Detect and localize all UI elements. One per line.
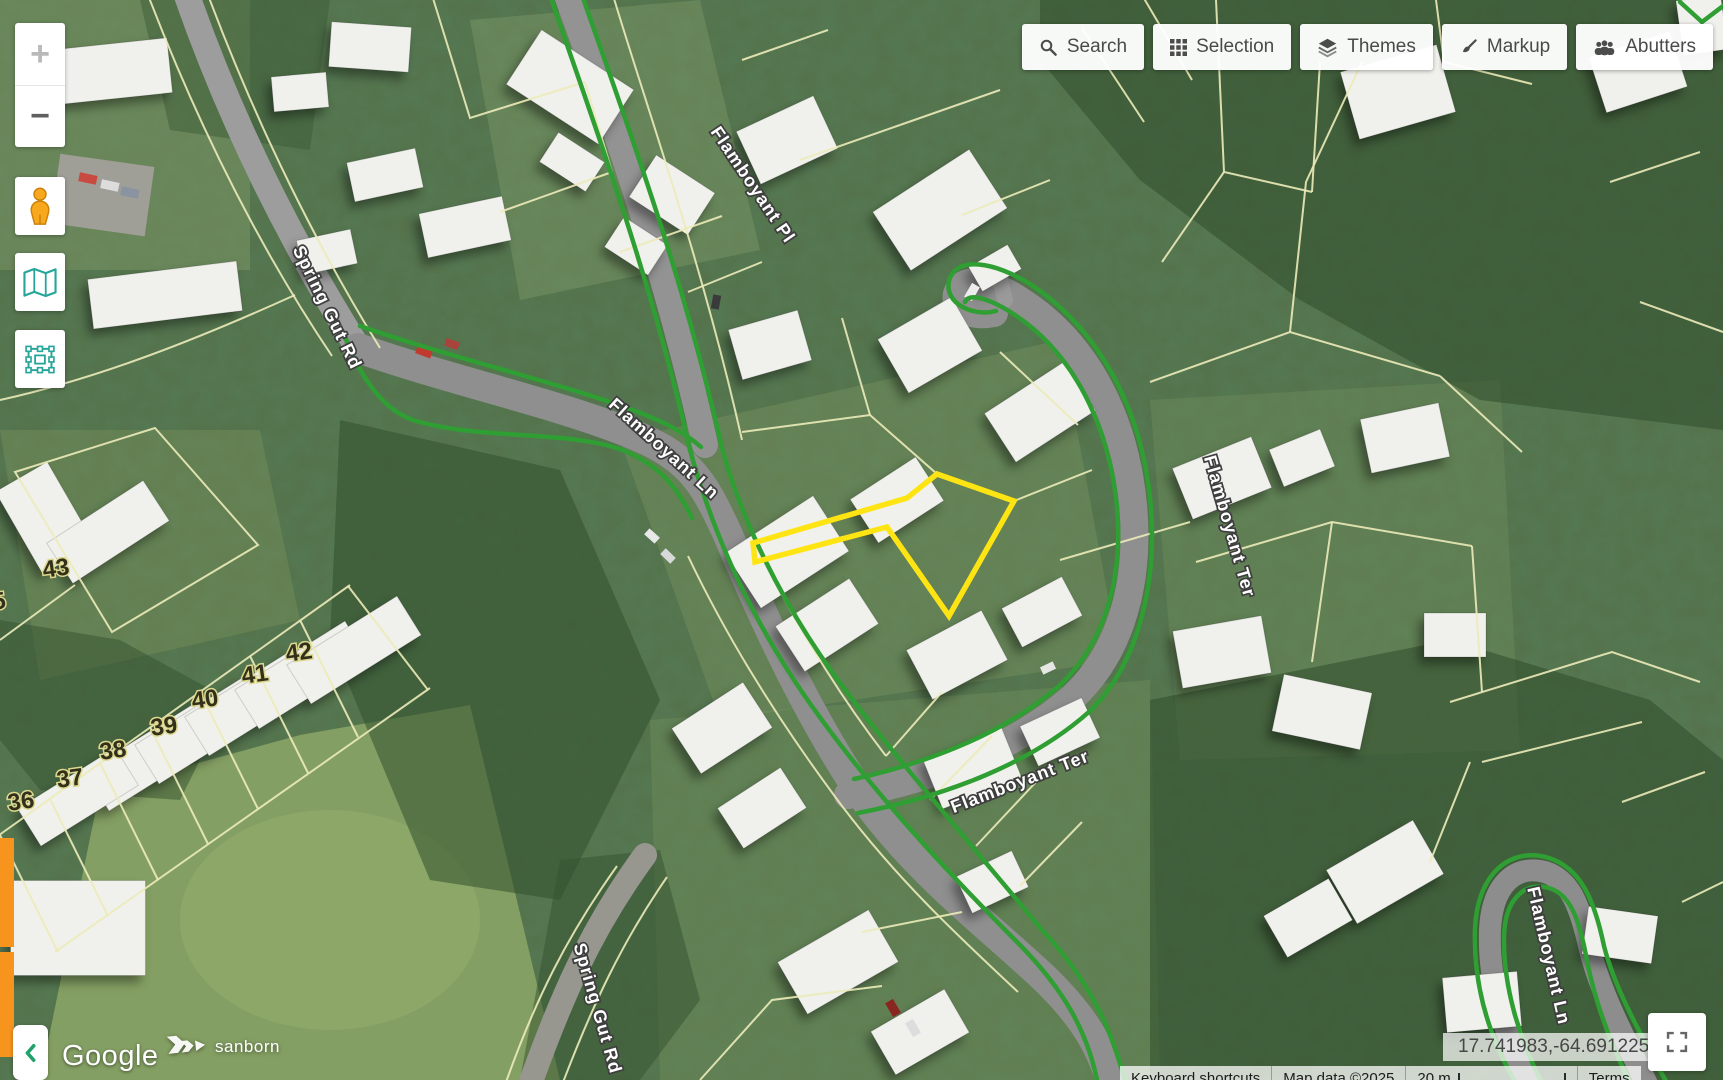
streetview-pegman-button[interactable] bbox=[15, 177, 65, 235]
cursor-coordinates-readout: 17.741983,-64.691225 bbox=[1443, 1033, 1664, 1061]
parcel-label: 43 bbox=[41, 553, 71, 583]
parcel-label: 36 bbox=[6, 786, 36, 816]
basemap-button[interactable] bbox=[15, 253, 65, 311]
select-extent-button[interactable] bbox=[15, 330, 65, 388]
chevron-left-icon bbox=[22, 1041, 40, 1065]
zoom-control: + − bbox=[15, 23, 65, 147]
parcel-label: 41 bbox=[240, 659, 270, 689]
zoom-in-button[interactable]: + bbox=[15, 24, 65, 86]
parcel-label: 40 bbox=[190, 684, 220, 714]
search-button[interactable]: Search bbox=[1022, 24, 1144, 70]
abutters-button-label: Abutters bbox=[1625, 36, 1696, 58]
zoom-out-button[interactable]: − bbox=[15, 86, 65, 147]
markup-brush-icon bbox=[1459, 38, 1478, 57]
sanborn-mark-icon bbox=[165, 1030, 212, 1064]
search-icon bbox=[1039, 38, 1058, 57]
selection-button[interactable]: Selection bbox=[1153, 24, 1291, 70]
parcel-label: 38 bbox=[98, 735, 128, 765]
selection-button-label: Selection bbox=[1196, 36, 1274, 58]
scale-label: 20 m bbox=[1417, 1070, 1450, 1080]
panel-collapse-button[interactable] bbox=[13, 1025, 48, 1080]
fullscreen-button[interactable] bbox=[1648, 1013, 1706, 1071]
map-data-text: Map data ©2025 bbox=[1271, 1066, 1405, 1080]
toolbar: Search Selection Themes bbox=[1022, 24, 1713, 70]
gis-map-app: Spring Gut Rd Flamboyant Pl Flamboyant L… bbox=[0, 0, 1723, 1080]
sanborn-label: sanborn bbox=[215, 1037, 280, 1057]
fullscreen-icon bbox=[1664, 1029, 1690, 1055]
parcel-label: 42 bbox=[284, 637, 314, 667]
map-canvas[interactable]: Spring Gut Rd Flamboyant Pl Flamboyant L… bbox=[0, 0, 1723, 1080]
keyboard-shortcuts-link[interactable]: Keyboard shortcuts bbox=[1120, 1066, 1271, 1080]
selection-grid-icon bbox=[1170, 39, 1187, 56]
search-button-label: Search bbox=[1067, 36, 1127, 58]
parcel-label: 39 bbox=[149, 711, 179, 741]
themes-button-label: Themes bbox=[1347, 36, 1416, 58]
scale-bar bbox=[1458, 1073, 1566, 1080]
sanborn-logo: sanborn bbox=[166, 1032, 280, 1062]
terms-link[interactable]: Terms bbox=[1577, 1066, 1641, 1080]
sidebar-orange-bar[interactable] bbox=[0, 952, 14, 1057]
scale-control: 20 m bbox=[1405, 1066, 1576, 1080]
parcel-label: 37 bbox=[55, 763, 85, 793]
markup-button[interactable]: Markup bbox=[1442, 24, 1567, 70]
google-logo[interactable]: Google bbox=[62, 1040, 159, 1073]
themes-layers-icon bbox=[1317, 37, 1338, 58]
markup-button-label: Markup bbox=[1487, 36, 1550, 58]
map-attribution-strip: Keyboard shortcuts Map data ©2025 20 m T… bbox=[1120, 1066, 1641, 1080]
abutters-people-icon bbox=[1593, 39, 1616, 56]
sidebar-orange-bar[interactable] bbox=[0, 838, 14, 947]
abutters-button[interactable]: Abutters bbox=[1576, 24, 1713, 70]
pegman-icon bbox=[24, 186, 56, 226]
map-icon bbox=[22, 266, 58, 299]
extent-select-icon bbox=[22, 343, 58, 376]
themes-button[interactable]: Themes bbox=[1300, 24, 1433, 70]
